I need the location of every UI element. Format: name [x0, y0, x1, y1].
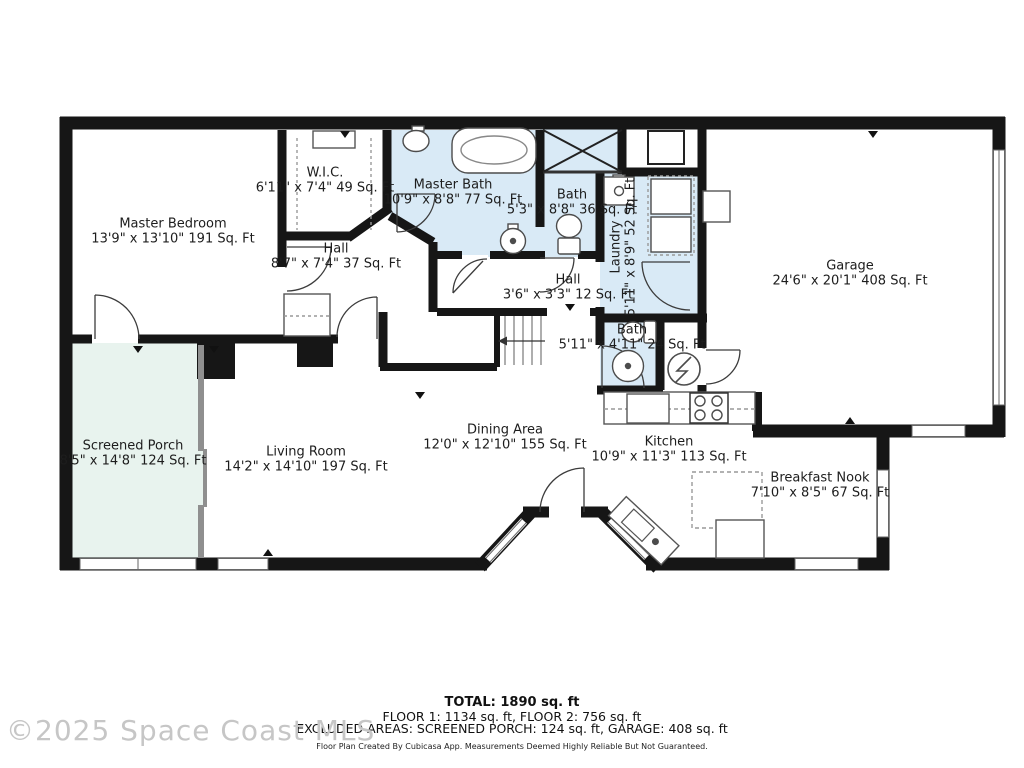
hall-living-door [337, 297, 377, 339]
kitchen-cabinet [627, 394, 669, 423]
room-name: Garage [772, 259, 927, 274]
front-door [540, 468, 584, 512]
room-dims: 24'6" x 20'1" 408 Sq. Ft [772, 274, 927, 289]
room-dims: 14'2" x 14'10" 197 Sq. Ft [224, 460, 387, 475]
room-dims: 13'9" x 13'10" 191 Sq. Ft [91, 232, 254, 247]
garage-entry-door [706, 350, 740, 384]
room-dims: 8'7" x 7'4" 37 Sq. Ft [271, 257, 401, 272]
room-name: Master Bath [384, 178, 523, 193]
room-dims: 3'6" x 3'3" 12 Sq. Ft [503, 288, 633, 303]
room-name: Kitchen [591, 435, 746, 450]
mls-watermark: ©2025 Space Coast MLS [6, 714, 375, 747]
room-label-dining-area: Dining Area 12'0" x 12'10" 155 Sq. Ft [423, 423, 586, 452]
hall-closet [284, 294, 330, 336]
room-name: Breakfast Nook [751, 471, 890, 486]
room-name: Hall [503, 273, 633, 288]
room-dims: 7'10" x 8'5" 67 Sq. Ft [751, 486, 890, 501]
floor-plan-page: Master Bedroom 13'9" x 13'10" 191 Sq. Ft… [0, 0, 1024, 768]
toilet-upper [557, 215, 582, 238]
room-label-master-bath: Master Bath 10'9" x 8'8" 77 Sq. Ft [384, 178, 523, 207]
room-name: Dining Area [423, 423, 586, 438]
room-name: Bath [559, 323, 706, 338]
room-dims: 5'11" x 4'11" 24 Sq. Ft [559, 338, 706, 353]
room-label-kitchen: Kitchen 10'9" x 11'3" 113 Sq. Ft [591, 435, 746, 464]
staircase [498, 316, 545, 365]
dryer [651, 217, 691, 252]
room-dims: 6'11" x 7'4" 49 Sq. Ft [256, 181, 395, 196]
room-name: Hall [271, 242, 401, 257]
room-dims: 10'9" x 8'8" 77 Sq. Ft [384, 193, 523, 208]
room-dims: 8'5" x 14'8" 124 Sq. Ft [60, 454, 207, 469]
wic-shelf [313, 131, 355, 148]
room-name: Living Room [224, 445, 387, 460]
room-dims: 12'0" x 12'10" 155 Sq. Ft [423, 438, 586, 453]
hall-small-door [453, 259, 487, 293]
room-label-bath-lower: Bath 5'11" x 4'11" 24 Sq. Ft [559, 323, 706, 352]
room-label-hall-small: Hall 3'6" x 3'3" 12 Sq. Ft [503, 273, 633, 302]
master-bath-sink [403, 131, 429, 152]
bathtub [452, 128, 536, 173]
washer [651, 179, 691, 214]
room-dims: 10'9" x 11'3" 113 Sq. Ft [591, 450, 746, 465]
room-name: Master Bedroom [91, 217, 254, 232]
kitchen-counter-lower [716, 520, 764, 558]
garage-shelf [703, 191, 730, 222]
room-label-wic: W.I.C. 6'11" x 7'4" 49 Sq. Ft [256, 166, 395, 195]
floor-plan-drawing [0, 0, 1024, 768]
utility-unit [648, 131, 684, 164]
room-label-garage: Garage 24'6" x 20'1" 408 Sq. Ft [772, 259, 927, 288]
water-heater [668, 353, 700, 385]
room-name: W.I.C. [256, 166, 395, 181]
room-label-screened-porch: Screened Porch 8'5" x 14'8" 124 Sq. Ft [60, 439, 207, 468]
room-label-living-room: Living Room 14'2" x 14'10" 197 Sq. Ft [224, 445, 387, 474]
room-label-breakfast-nook: Breakfast Nook 7'10" x 8'5" 67 Sq. Ft [751, 471, 890, 500]
total-area-text: TOTAL: 1890 sq. ft [0, 695, 1024, 710]
room-name: Screened Porch [60, 439, 207, 454]
bedroom-door [95, 295, 139, 339]
room-label-hall: Hall 8'7" x 7'4" 37 Sq. Ft [271, 242, 401, 271]
room-label-master-bedroom: Master Bedroom 13'9" x 13'10" 191 Sq. Ft [91, 217, 254, 246]
